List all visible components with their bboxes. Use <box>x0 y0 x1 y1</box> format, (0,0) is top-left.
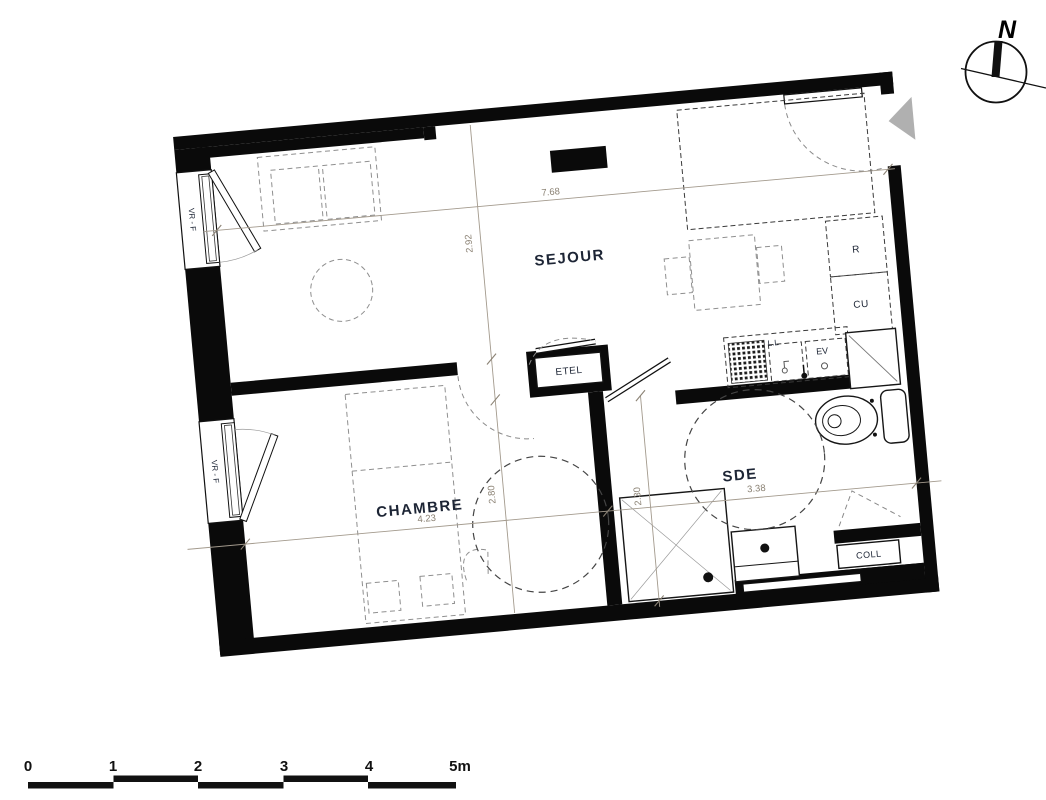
casement-leaf <box>240 434 278 522</box>
scale-segment <box>114 776 199 783</box>
toilet-bowl <box>813 393 879 446</box>
wall-coll-top <box>833 523 921 544</box>
coll-door-swing <box>836 487 901 526</box>
sofa <box>257 147 381 231</box>
chair <box>757 245 785 283</box>
svg-text:7.68: 7.68 <box>541 186 560 199</box>
chair <box>664 257 692 295</box>
entrance-arrow-icon <box>887 97 916 142</box>
north-compass: N <box>961 16 1046 103</box>
fridge-label: R <box>852 244 861 256</box>
dimension-sejour-width: 7.68 <box>203 156 896 237</box>
dimension-vertical-chain: 2.92 2.80 <box>453 125 519 615</box>
toilet-tank <box>880 389 910 444</box>
dim-sejour-depth: 2.92 <box>463 234 476 253</box>
kitchen-unit-zone: CU <box>830 272 892 335</box>
sink-bowl-right <box>805 338 848 378</box>
washer-label: L.L <box>767 338 779 348</box>
kitchen-counter: L.L EV <box>724 327 852 388</box>
wall-chambre-sde <box>588 391 622 605</box>
faucet-icon <box>782 368 787 373</box>
apartment-plan: VR - F VR - F ETEL <box>150 70 956 659</box>
wall-sejour-chambre <box>231 362 458 396</box>
entry-zone <box>677 93 875 230</box>
entrance-door <box>784 86 885 177</box>
drain-icon <box>821 363 828 370</box>
scale-segment <box>368 782 456 789</box>
turning-circle-chambre <box>467 450 615 598</box>
sde-room-label: SDE <box>722 465 759 485</box>
window-vrf-1: VR - F <box>176 166 262 270</box>
casement-swing <box>235 426 275 438</box>
scale-tick-1: 1 <box>109 758 117 775</box>
structural-duct <box>550 146 608 173</box>
scale-bar: 0 1 2 3 4 5m <box>24 758 471 789</box>
scale-tick-0: 0 <box>24 758 32 775</box>
north-label: N <box>998 16 1017 44</box>
toilet <box>813 389 909 450</box>
floor-plan-canvas: VR - F VR - F ETEL <box>0 0 1046 800</box>
sejour-room-label: SEJOUR <box>534 246 606 269</box>
corner-cabinet <box>846 328 901 388</box>
scale-tick-3: 3 <box>280 758 288 775</box>
compass-needle-icon <box>992 41 1003 77</box>
etel-closet: ETEL <box>525 335 612 398</box>
dim-chambre-depth: 2.80 <box>486 485 499 504</box>
compass-cross-line <box>961 69 1046 89</box>
dim-sde-width: 3.38 <box>747 483 766 496</box>
window-vrf-2: VR - F <box>199 415 285 525</box>
washing-machine <box>728 340 767 383</box>
casement-swing <box>219 250 259 262</box>
scale-end-label: 5m <box>449 758 471 775</box>
dining-table <box>663 232 787 312</box>
scale-tick-4: 4 <box>365 758 374 775</box>
svg-text:2.30: 2.30 <box>632 487 645 506</box>
scale-segment <box>198 782 284 789</box>
scale-segment <box>28 782 114 789</box>
scale-tick-2: 2 <box>194 758 202 775</box>
washbasin <box>731 526 799 582</box>
sde-door <box>604 360 673 400</box>
kitchen-unit-label: CU <box>853 299 869 311</box>
sink-label: EV <box>816 346 829 357</box>
sde-door-leaf <box>604 360 673 400</box>
fridge-zone: R <box>825 216 887 277</box>
dimension-lower-chain: 4.23 3.38 <box>186 467 942 555</box>
round-table <box>308 257 375 324</box>
scale-segment <box>284 776 369 783</box>
entrance-door-swing <box>785 96 885 178</box>
